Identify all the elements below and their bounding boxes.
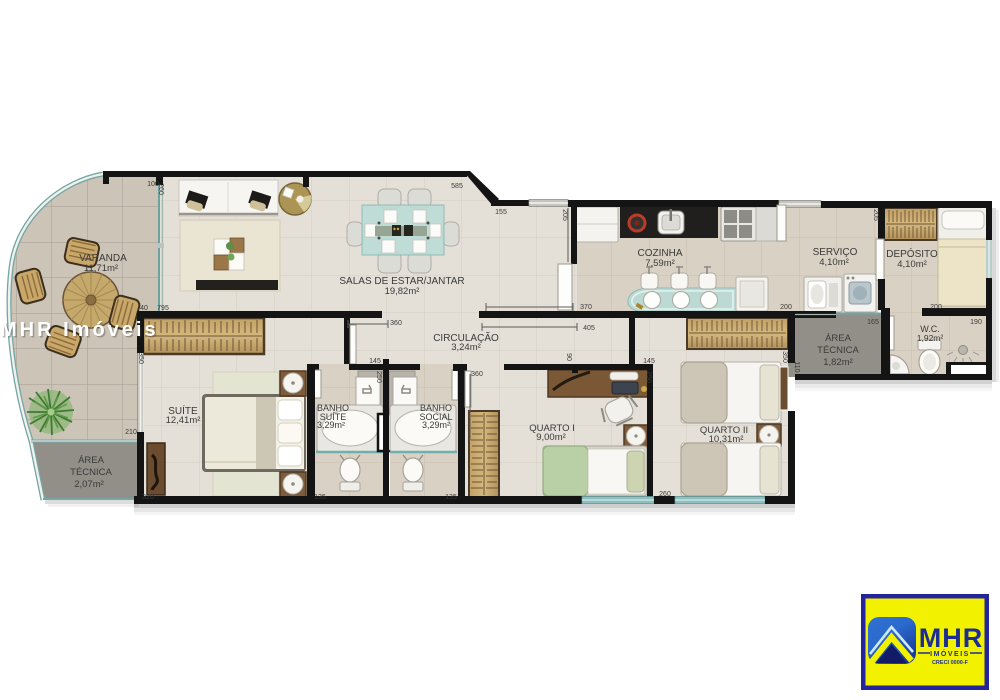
- svg-text:210: 210: [125, 429, 137, 436]
- svg-text:250: 250: [645, 371, 652, 383]
- svg-text:3,29m²: 3,29m²: [422, 420, 450, 430]
- svg-text:165: 165: [867, 319, 879, 326]
- svg-text:4,10m²: 4,10m²: [897, 259, 927, 270]
- svg-text:155: 155: [495, 209, 507, 216]
- svg-text:IMÓVEIS: IMÓVEIS: [930, 649, 970, 658]
- svg-text:CRECI 0000-F: CRECI 0000-F: [932, 660, 969, 666]
- svg-text:ÁREA: ÁREA: [825, 333, 852, 344]
- svg-text:TÉCNICA: TÉCNICA: [817, 345, 859, 356]
- svg-text:145: 145: [643, 358, 655, 365]
- svg-text:190: 190: [970, 319, 982, 326]
- svg-text:585: 585: [451, 183, 463, 190]
- svg-text:360: 360: [390, 320, 402, 327]
- svg-text:1,82m²: 1,82m²: [823, 357, 853, 368]
- svg-text:110: 110: [793, 361, 800, 372]
- svg-text:MHR: MHR: [919, 623, 984, 653]
- svg-text:135: 135: [445, 494, 457, 501]
- svg-text:40: 40: [140, 305, 148, 312]
- svg-text:TÉCNICA: TÉCNICA: [70, 467, 112, 478]
- svg-text:260: 260: [659, 491, 671, 498]
- svg-text:4,10m²: 4,10m²: [819, 257, 849, 268]
- svg-text:205: 205: [561, 209, 568, 221]
- svg-text:200: 200: [780, 304, 792, 311]
- svg-text:350: 350: [781, 351, 788, 363]
- svg-text:MHR Imóveis: MHR Imóveis: [0, 319, 159, 341]
- svg-text:ÁREA: ÁREA: [78, 455, 105, 466]
- svg-text:11,71m²: 11,71m²: [84, 263, 118, 274]
- svg-text:260: 260: [157, 183, 164, 195]
- svg-text:19,82m²: 19,82m²: [385, 286, 420, 297]
- svg-text:10,31m²: 10,31m²: [709, 434, 744, 445]
- svg-text:205: 205: [872, 209, 879, 221]
- svg-text:250: 250: [375, 371, 382, 383]
- svg-text:1,92m²: 1,92m²: [917, 333, 944, 343]
- svg-text:135: 135: [314, 494, 326, 501]
- svg-text:360: 360: [471, 371, 483, 378]
- svg-text:90: 90: [565, 353, 572, 361]
- svg-text:2,07m²: 2,07m²: [74, 479, 104, 490]
- svg-text:145: 145: [369, 358, 381, 365]
- svg-text:9,00m²: 9,00m²: [536, 432, 566, 443]
- svg-text:370: 370: [580, 304, 592, 311]
- svg-text:795: 795: [157, 305, 169, 312]
- svg-text:320: 320: [142, 494, 154, 501]
- svg-text:3,29m²: 3,29m²: [317, 420, 345, 430]
- svg-text:350: 350: [137, 352, 144, 364]
- svg-text:405: 405: [583, 325, 595, 332]
- svg-text:3,24m²: 3,24m²: [451, 342, 481, 353]
- svg-text:12,41m²: 12,41m²: [166, 415, 201, 426]
- svg-text:200: 200: [930, 304, 942, 311]
- svg-text:7,59m²: 7,59m²: [645, 258, 675, 269]
